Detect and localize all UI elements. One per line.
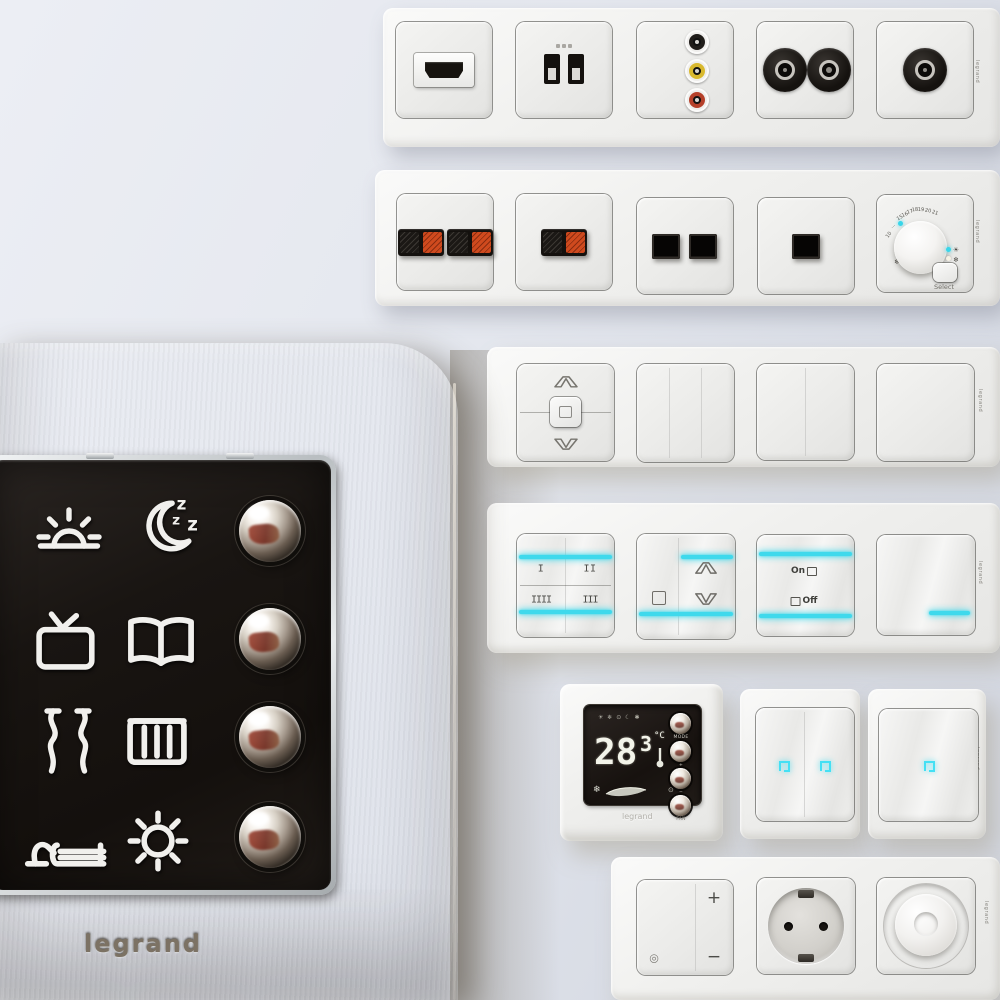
fan-button-label: FAN [676, 817, 686, 822]
legrand-logo: legrand [84, 930, 202, 958]
thermostat-mode-icons: ☀ ❄ ⊙ ☾ ✱ [598, 714, 640, 721]
scene-label-3: IIII [531, 595, 551, 606]
temp-decimal: 3 [640, 732, 652, 756]
dimmer-rocker-switch[interactable]: ◎ + − [637, 880, 733, 975]
plate-touch-2gang [740, 689, 860, 839]
blind-down-icon [693, 592, 719, 605]
plate-touch-1gang: legrand [868, 689, 986, 839]
on-zone[interactable]: On [791, 566, 817, 576]
scene-label-1: I [538, 564, 545, 575]
on-flag-icon [807, 567, 817, 576]
blind-stop-button[interactable] [550, 397, 581, 427]
blank-touch-switch[interactable] [877, 535, 975, 635]
scene-led-bottom [519, 610, 612, 614]
hdmi-socket [396, 22, 492, 118]
schuko-hole-left [784, 922, 793, 931]
plus-button[interactable] [670, 741, 691, 762]
rj45-single-socket [758, 198, 854, 294]
minus-button[interactable] [670, 768, 691, 789]
speaker-double-socket [397, 194, 493, 290]
sleep-icon: z z z [126, 488, 206, 568]
thermometer-icon [656, 745, 664, 769]
scene-button-4[interactable] [239, 806, 301, 868]
sunrise-icon [31, 495, 107, 565]
svg-text:z: z [172, 512, 180, 528]
cool-led [946, 256, 951, 261]
dial-scale-21: 21 [931, 209, 939, 217]
rj45-double-socket [637, 198, 733, 294]
touch-2gang-switch[interactable] [756, 708, 854, 821]
plate-media-sockets: legrand 10 ... 15 16 17 18 19 20 21 ❄ ☀ … [375, 170, 1000, 306]
blind-rocker-switch[interactable] [517, 364, 614, 461]
onoff-led-top [759, 552, 852, 556]
usb-port-right [568, 54, 584, 84]
rocker-blank-switch[interactable] [877, 364, 974, 461]
off-flag-icon [791, 597, 801, 606]
mode-button[interactable] [670, 713, 691, 734]
plate-edge-brand: legrand [983, 901, 989, 924]
touch-led-icon [923, 760, 936, 773]
select-button[interactable] [933, 263, 957, 282]
plate-edge-brand: legrand [977, 561, 983, 584]
schuko-earth-clip-top [798, 890, 814, 898]
rca-triple-socket [637, 22, 733, 118]
rocker-2gang-switch[interactable] [757, 364, 854, 460]
scene-led-top [519, 555, 612, 559]
reading-icon [123, 612, 199, 674]
plate-rockers: legrand [487, 347, 1000, 467]
off-zone[interactable]: Off [791, 596, 818, 606]
usb-label-marks [556, 44, 572, 48]
mode-button-label: MODE [674, 735, 689, 740]
rj45-port [792, 234, 820, 259]
tv-icon [29, 608, 105, 674]
plate-edge-brand: legrand [974, 60, 980, 83]
bezel-clip [86, 453, 114, 459]
rca-yellow-jack [685, 59, 709, 83]
curtains-icon [35, 705, 101, 781]
tv-coax-female [763, 48, 807, 92]
hdmi-port-icon [425, 62, 463, 78]
dial-scale-10: 10 [885, 231, 894, 240]
coax-jack [903, 48, 947, 92]
dial-led-set [898, 221, 903, 226]
fan-button[interactable] [670, 795, 691, 816]
dial-scale-dots: ... [889, 222, 897, 230]
rca-white-jack [685, 30, 709, 54]
coax-single-socket [877, 22, 973, 118]
usb-double-socket [516, 22, 612, 118]
speaker-terminal[interactable] [447, 229, 493, 256]
dial-scale-19: 19 [918, 207, 925, 213]
touch-1gang-switch[interactable] [879, 709, 978, 821]
bezel-clip [226, 453, 254, 459]
temp-unit: °C [654, 731, 665, 741]
blind-led-bottom [639, 612, 733, 616]
heat-icon: ☀ [953, 246, 959, 254]
off-label: Off [803, 596, 818, 606]
rj45-port [689, 234, 717, 259]
blind-led-top [681, 555, 733, 559]
scene-panel-bezel: z z z [0, 455, 336, 895]
on-label: On [791, 566, 805, 576]
thermostat-screen: ☀ ❄ ⊙ ☾ ✱ 28 3 °C ❄ ⊙ ◦ MODE + − FAN [584, 705, 701, 805]
thermostat-dial-module: 10 ... 15 16 17 18 19 20 21 ❄ ☀ ❄ Select [877, 195, 973, 292]
plate-edge-brand: legrand [977, 389, 983, 412]
schuko-earth-clip-bottom [798, 954, 814, 962]
scene-button-3[interactable] [239, 706, 301, 768]
usb-port-left [544, 54, 560, 84]
blank-led [929, 611, 970, 615]
svg-text:z: z [177, 493, 187, 513]
relax-icon [23, 808, 113, 874]
rocker-3gang-switch[interactable] [637, 364, 734, 462]
scene-label-2: II [583, 564, 596, 575]
speaker-single-socket [516, 194, 612, 290]
schuko-hole-right [819, 922, 828, 931]
plate-power: legrand ◎ + − [611, 857, 1000, 1000]
brightness-icon [121, 804, 195, 882]
dimmer-minus-button[interactable]: − [707, 947, 721, 967]
scene-button-1[interactable] [239, 500, 301, 562]
heating-icon [119, 708, 195, 776]
temp-value: 28 [594, 732, 637, 773]
fan-blade-icon [604, 785, 648, 798]
touch-led-icon-right [819, 760, 832, 773]
speaker-terminal[interactable] [398, 229, 444, 256]
scene-touch-switch[interactable]: I II IIII III [517, 534, 614, 637]
blind-down-arrow[interactable] [553, 436, 579, 450]
plate-touch-switches: legrand I II IIII III On Off [487, 503, 1000, 653]
scene-glass-panel: z z z [0, 460, 331, 890]
plate-edge-brand: legrand [974, 220, 980, 243]
plate-digital-thermostat: ☀ ❄ ⊙ ☾ ✱ 28 3 °C ❄ ⊙ ◦ MODE + − FAN leg… [560, 684, 723, 841]
rca-red-jack [685, 88, 709, 112]
scene-label-4: III [582, 595, 597, 606]
onoff-touch-switch[interactable]: On Off [757, 535, 854, 636]
speaker-terminal[interactable] [541, 229, 587, 256]
rotary-knob[interactable] [895, 894, 957, 956]
tv-sat-double-socket [757, 22, 853, 118]
dimmer-indicator-icon: ◎ [649, 952, 659, 965]
thermostat-brand-label: legrand [622, 812, 653, 821]
blind-up-icon [693, 562, 719, 575]
touch-led-icon-left [778, 760, 791, 773]
blind-up-arrow[interactable] [553, 376, 579, 390]
dimmer-plus-button[interactable]: + [707, 888, 721, 908]
svg-text:z: z [187, 515, 198, 536]
fan-snow-icon: ❄ [593, 785, 601, 795]
scene-button-2[interactable] [239, 608, 301, 670]
tv-coax-male [807, 48, 851, 92]
schuko-socket [757, 878, 855, 974]
schuko-recess [768, 888, 844, 964]
blind-touch-switch[interactable] [637, 534, 735, 639]
select-label: Select [934, 283, 954, 291]
blind-stop-icon [652, 591, 666, 605]
heat-led [946, 247, 951, 252]
plate-av-sockets: legrand [383, 8, 1000, 147]
rj45-port [652, 234, 680, 259]
onoff-led-bottom [759, 614, 852, 618]
hdmi-inset [414, 53, 474, 87]
rotary-dimmer [877, 878, 975, 974]
